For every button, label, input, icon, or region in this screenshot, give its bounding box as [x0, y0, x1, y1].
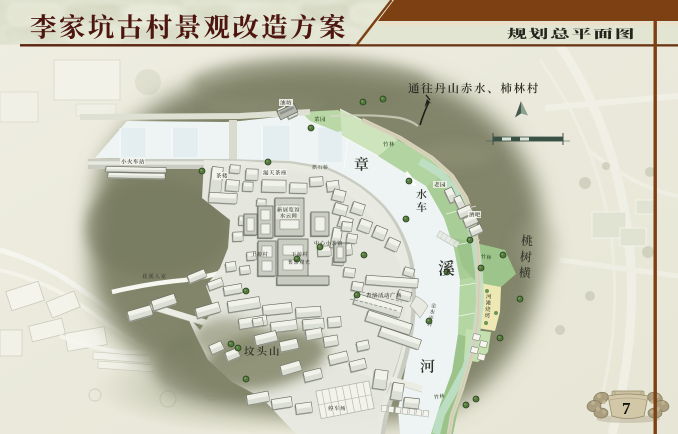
svg-text:7: 7	[622, 399, 631, 418]
